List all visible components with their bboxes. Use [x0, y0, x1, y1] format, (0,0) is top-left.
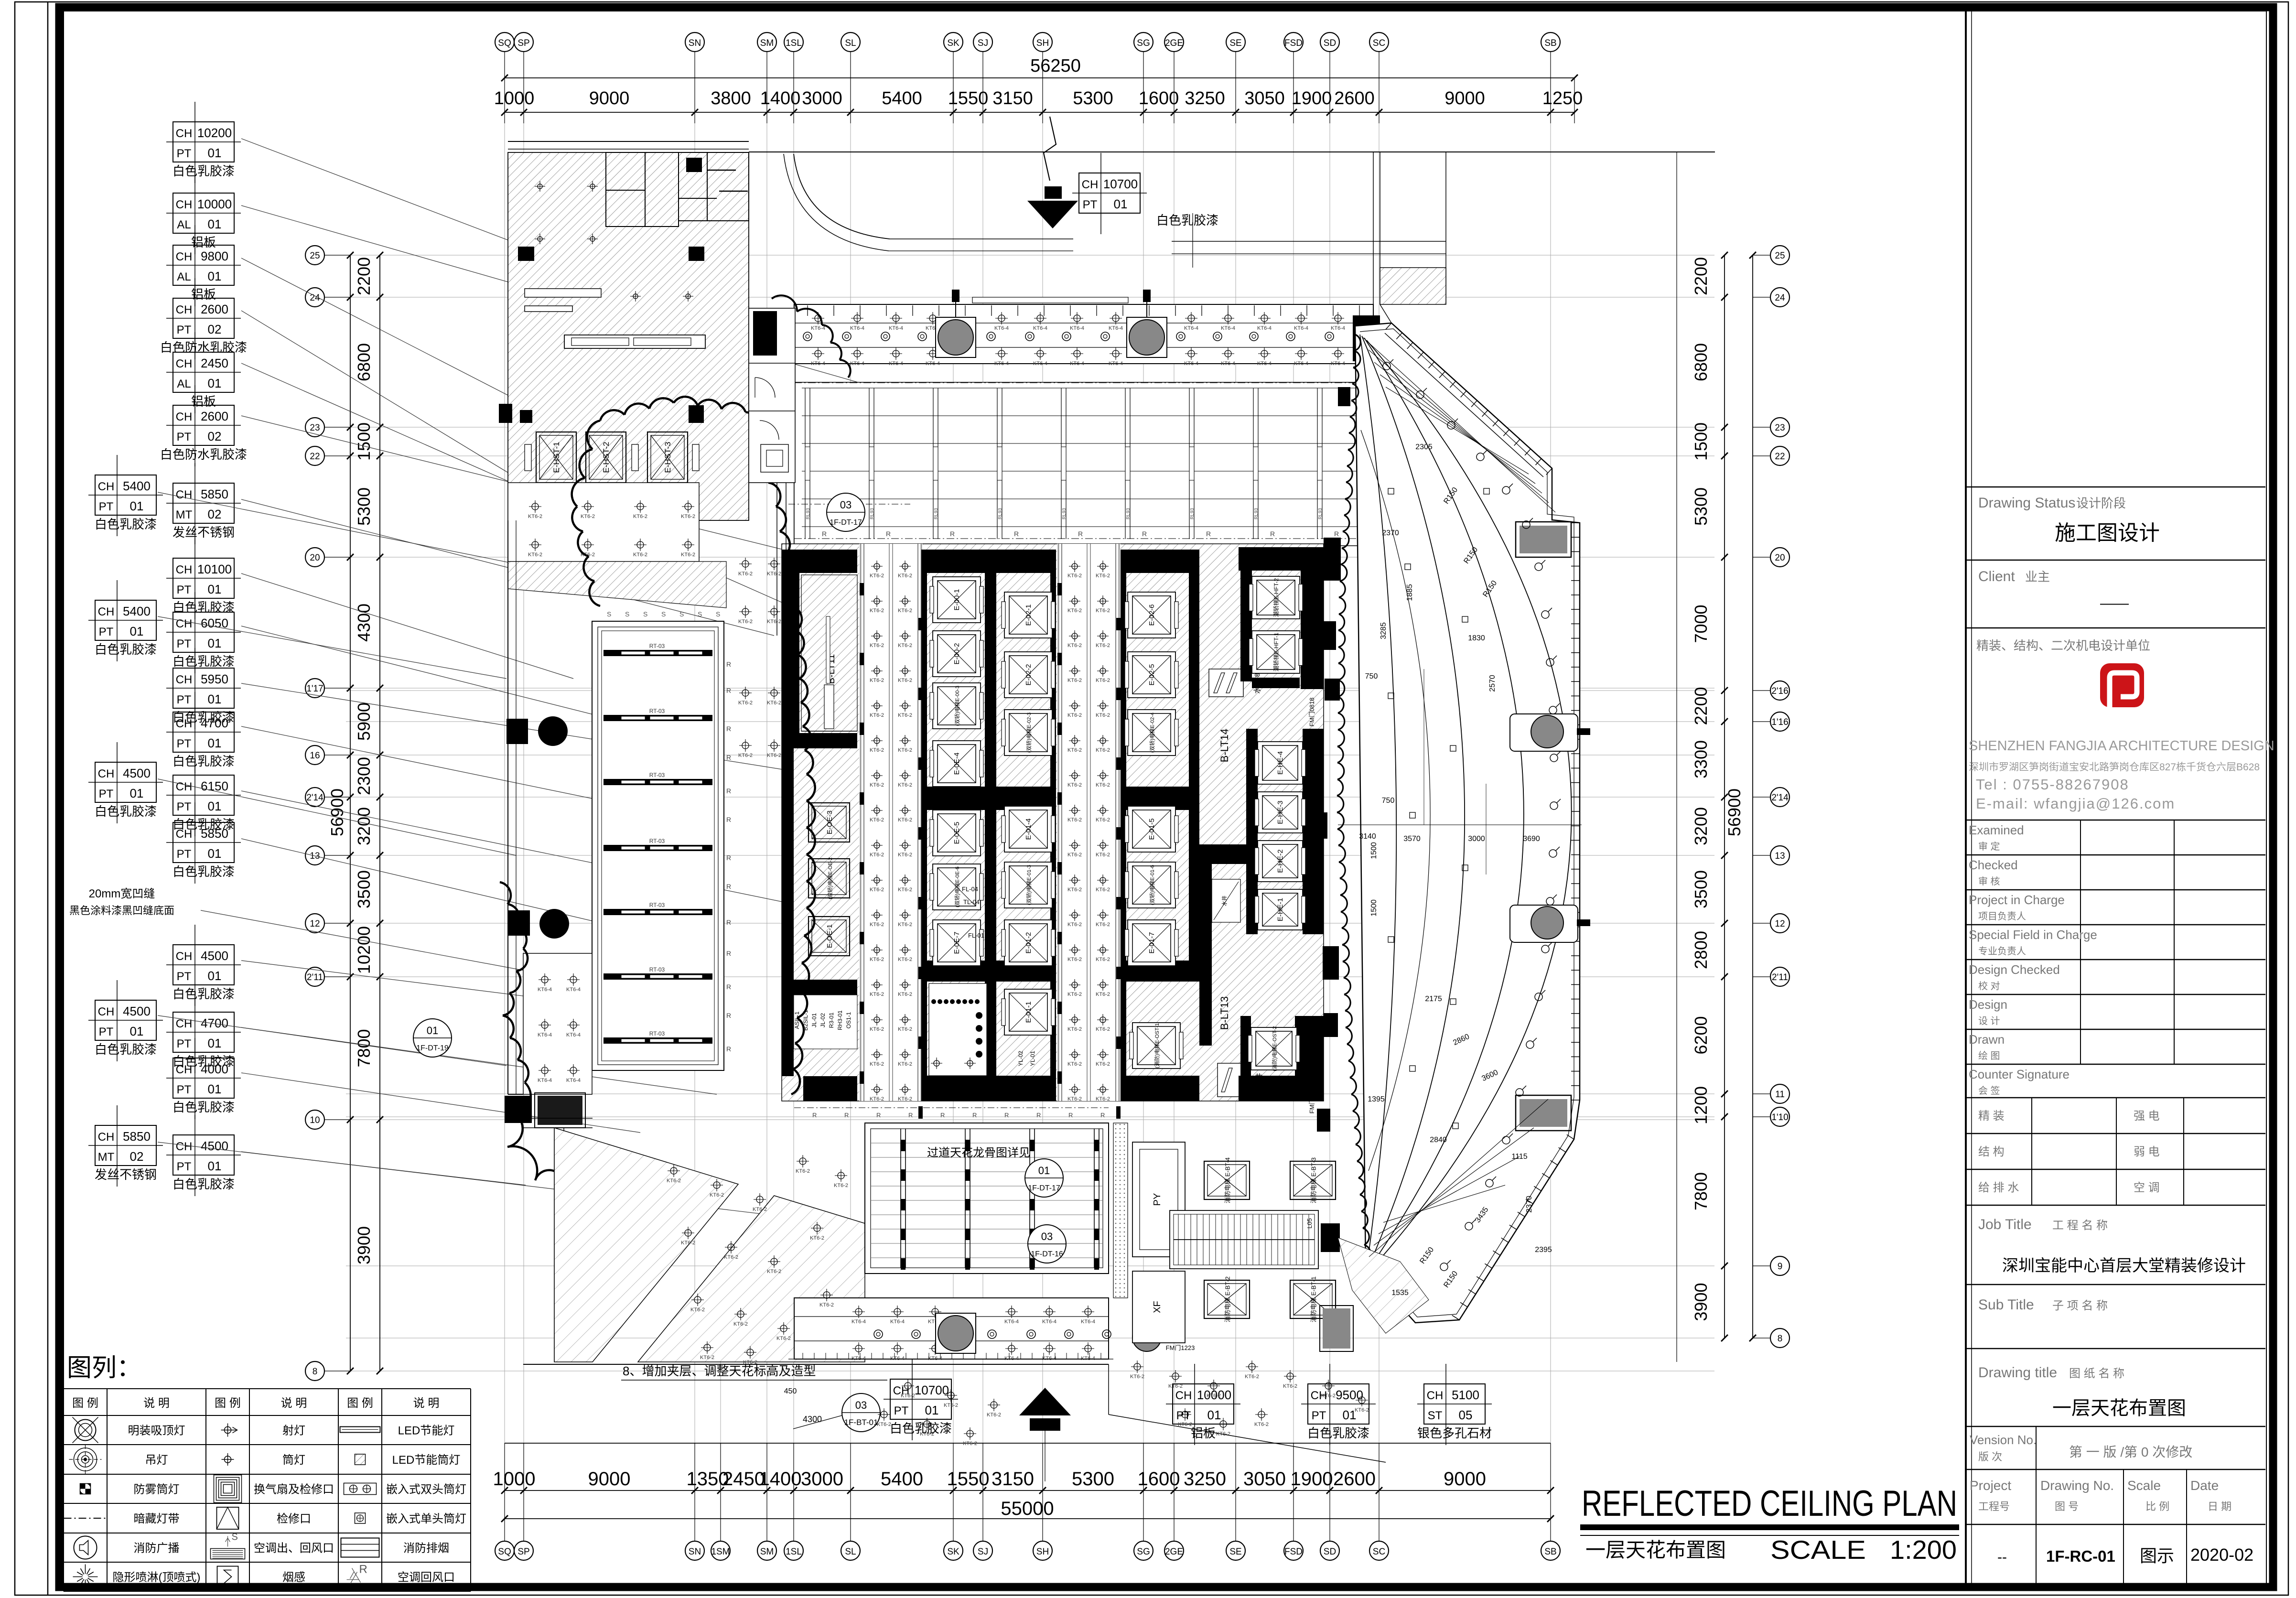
svg-text:RT-03: RT-03 — [649, 1030, 665, 1037]
svg-text:12: 12 — [310, 919, 320, 929]
svg-text:20: 20 — [310, 553, 320, 563]
svg-text:FSD: FSD — [1284, 1547, 1303, 1557]
svg-text:白色乳胶漆: 白色乳胶漆 — [172, 864, 235, 879]
svg-text:SJ: SJ — [978, 1547, 988, 1557]
svg-text:KT6-4: KT6-4 — [566, 987, 581, 993]
svg-text:02: 02 — [208, 507, 222, 521]
svg-text:3000: 3000 — [802, 88, 842, 108]
svg-text:KT6-2: KT6-2 — [1254, 1422, 1269, 1427]
svg-text:Counter Signature: Counter Signature — [1969, 1067, 2070, 1081]
svg-text:工 程 名 称: 工 程 名 称 — [2052, 1219, 2108, 1232]
svg-text:KT6-2: KT6-2 — [1096, 713, 1110, 718]
svg-text:E-02-6: E-02-6 — [1148, 604, 1156, 626]
svg-text:01: 01 — [208, 146, 222, 160]
svg-text:2'11: 2'11 — [307, 972, 323, 983]
svg-text:5300: 5300 — [1073, 88, 1113, 108]
svg-text:AL: AL — [177, 218, 191, 231]
svg-text:KT6-4: KT6-4 — [1004, 1356, 1019, 1361]
svg-text:KT6-4: KT6-4 — [1109, 361, 1123, 367]
svg-text:3140: 3140 — [1359, 832, 1376, 841]
svg-text:05: 05 — [1459, 1408, 1473, 1422]
svg-text:2370: 2370 — [1382, 529, 1399, 537]
svg-text:YL-01: YL-01 — [1029, 1051, 1036, 1066]
svg-text:02: 02 — [208, 429, 222, 443]
svg-text:KT6-2: KT6-2 — [901, 1393, 915, 1399]
svg-text:1SL: 1SL — [786, 1547, 802, 1557]
svg-text:Drawing Status: Drawing Status — [1978, 495, 2075, 511]
svg-text:1200: 1200 — [1691, 1086, 1711, 1124]
svg-text:KT6-2: KT6-2 — [870, 852, 884, 858]
svg-text:CH: CH — [176, 1140, 193, 1153]
svg-text:R: R — [1270, 530, 1275, 538]
svg-text:RL93: RL93 — [998, 508, 1003, 519]
svg-text:FM门1223: FM门1223 — [1166, 1344, 1195, 1351]
svg-text:KT6-2: KT6-2 — [1096, 782, 1110, 788]
svg-text:PT: PT — [99, 500, 114, 513]
svg-text:KT6-2: KT6-2 — [898, 852, 912, 858]
svg-text:KT6-2: KT6-2 — [877, 1422, 891, 1427]
svg-text:4300: 4300 — [803, 1414, 822, 1424]
svg-text:PT: PT — [894, 1404, 909, 1417]
svg-text:2'16: 2'16 — [1771, 686, 1788, 696]
svg-text:4300: 4300 — [354, 604, 374, 642]
svg-text:2175: 2175 — [1425, 995, 1442, 1003]
svg-text:暗藏灯带: 暗藏灯带 — [134, 1512, 180, 1525]
svg-text:03: 03 — [1041, 1231, 1053, 1242]
svg-text:KT6-2: KT6-2 — [1067, 678, 1082, 683]
svg-text:1F-RC-01: 1F-RC-01 — [2046, 1547, 2115, 1565]
svg-text:KT6-2: KT6-2 — [1067, 992, 1082, 997]
svg-text:KT6-4: KT6-4 — [850, 361, 864, 367]
svg-text:(双轿)电梯E-01-6: (双轿)电梯E-01-6 — [1149, 865, 1155, 905]
svg-text:白色乳胶漆: 白色乳胶漆 — [172, 1177, 235, 1191]
svg-text:25: 25 — [1775, 251, 1785, 261]
svg-text:RL93: RL93 — [934, 508, 939, 519]
svg-text:E-HE-2: E-HE-2 — [1276, 849, 1284, 873]
svg-text:01: 01 — [130, 499, 144, 513]
svg-text:KT6-4: KT6-4 — [1033, 325, 1047, 331]
svg-text:KT6-2: KT6-2 — [1096, 747, 1110, 753]
svg-text:R: R — [1068, 1112, 1073, 1119]
svg-text:白色乳胶漆: 白色乳胶漆 — [172, 164, 235, 178]
svg-text:KT6-2: KT6-2 — [581, 514, 595, 519]
svg-text:1SM: 1SM — [711, 1547, 730, 1557]
svg-text:KT6-2: KT6-2 — [1067, 573, 1082, 579]
svg-text:2370: 2370 — [1525, 1196, 1533, 1213]
svg-text:S: S — [679, 610, 684, 618]
svg-text:S: S — [607, 610, 611, 618]
svg-text:精装、结构、二次机电设计单位: 精装、结构、二次机电设计单位 — [1976, 638, 2150, 653]
svg-text:01: 01 — [1038, 1165, 1050, 1177]
svg-text:KT6-2: KT6-2 — [767, 619, 781, 625]
svg-text:R: R — [1334, 530, 1339, 538]
svg-text:KT6-2: KT6-2 — [738, 619, 753, 625]
svg-text:KT6-2: KT6-2 — [767, 753, 781, 758]
svg-text:空 调: 空 调 — [2134, 1181, 2160, 1194]
svg-text:01: 01 — [208, 269, 222, 283]
svg-text:E-HE-4: E-HE-4 — [1276, 751, 1284, 775]
svg-text:KT6-2: KT6-2 — [944, 1403, 958, 1408]
svg-text:(双轿)电梯E-0E-6: (双轿)电梯E-0E-6 — [954, 866, 960, 907]
svg-text:3900: 3900 — [1691, 1283, 1711, 1321]
svg-text:R: R — [1036, 1112, 1041, 1119]
svg-text:4500: 4500 — [201, 1139, 228, 1153]
svg-text:KT6-4: KT6-4 — [811, 325, 825, 331]
svg-text:KT6-2: KT6-2 — [834, 1183, 848, 1188]
svg-text:绘 图: 绘 图 — [1978, 1050, 2000, 1061]
svg-text:5400: 5400 — [882, 88, 922, 108]
svg-text:(消防)电梯E-OST-1: (消防)电梯E-OST-1 — [1153, 1023, 1160, 1068]
svg-text:KT6-2: KT6-2 — [870, 747, 884, 753]
svg-text:PT: PT — [177, 737, 192, 750]
svg-text:SK: SK — [947, 1547, 959, 1557]
svg-text:KT6-2: KT6-2 — [898, 573, 912, 579]
svg-text:KT6-4: KT6-4 — [1081, 1356, 1095, 1361]
svg-text:会 签: 会 签 — [1978, 1085, 2000, 1096]
svg-text:KT6-4: KT6-4 — [994, 361, 1009, 367]
svg-text:KT6-2: KT6-2 — [1067, 747, 1082, 753]
svg-text:PT: PT — [177, 583, 192, 596]
svg-text:7800: 7800 — [1691, 1172, 1711, 1210]
svg-text:S: S — [643, 610, 647, 618]
svg-text:KT6-2: KT6-2 — [681, 514, 695, 519]
svg-text:8: 8 — [1778, 1334, 1783, 1344]
svg-text:白色乳胶漆: 白色乳胶漆 — [95, 517, 157, 531]
svg-text:KT6-2: KT6-2 — [681, 1240, 695, 1246]
svg-text:CH: CH — [176, 250, 193, 263]
svg-text:KT6-2: KT6-2 — [1096, 1026, 1110, 1032]
svg-text:10700: 10700 — [915, 1383, 949, 1397]
svg-text:弱 电: 弱 电 — [2134, 1145, 2160, 1158]
svg-text:SC: SC — [1373, 38, 1385, 48]
svg-text:KT6-2: KT6-2 — [710, 1192, 724, 1198]
svg-text:R: R — [940, 1112, 945, 1119]
svg-text:KT6-2: KT6-2 — [1067, 643, 1082, 648]
svg-text:5300: 5300 — [1691, 487, 1711, 526]
svg-text:潮轿梯E-HFT-1: 潮轿梯E-HFT-1 — [1272, 633, 1280, 672]
svg-text:Design Checked: Design Checked — [1969, 962, 2060, 977]
svg-text:3000: 3000 — [801, 1468, 843, 1490]
svg-text:01: 01 — [130, 786, 144, 800]
svg-text:1:200: 1:200 — [1890, 1535, 1957, 1565]
svg-text:KT6-4: KT6-4 — [566, 1032, 581, 1038]
svg-text:R: R — [726, 883, 731, 890]
svg-text:2'14: 2'14 — [306, 793, 323, 803]
svg-text:KT6-2: KT6-2 — [753, 1207, 767, 1212]
svg-text:隐形喷淋(顶喷式): 隐形喷淋(顶喷式) — [113, 1571, 201, 1584]
svg-text:白色乳胶漆: 白色乳胶漆 — [1156, 213, 1218, 227]
svg-text:1500: 1500 — [1691, 422, 1711, 461]
svg-text:一层天花布置图: 一层天花布置图 — [1585, 1539, 1726, 1561]
svg-text:SCALE: SCALE — [1770, 1535, 1866, 1565]
svg-text:3500: 3500 — [1691, 870, 1711, 908]
svg-text:换气扇及检修口: 换气扇及检修口 — [254, 1483, 334, 1496]
svg-text:水井: 水井 — [1221, 896, 1228, 906]
svg-text:FM门0818: FM门0818 — [1308, 698, 1315, 727]
svg-text:PY: PY — [1152, 1193, 1163, 1206]
svg-text:CH: CH — [176, 673, 193, 686]
svg-text:01: 01 — [208, 1036, 222, 1050]
svg-text:R: R — [1100, 1112, 1105, 1119]
svg-text:CH: CH — [98, 767, 115, 780]
svg-text:KT6-4: KT6-4 — [1184, 325, 1198, 331]
svg-text:图 纸 名 称: 图 纸 名 称 — [2069, 1367, 2124, 1380]
svg-text:CH: CH — [176, 127, 193, 140]
svg-text:2570: 2570 — [1488, 675, 1497, 692]
svg-text:CH: CH — [176, 357, 193, 370]
svg-text:KT6-2: KT6-2 — [870, 1061, 884, 1067]
svg-text:PT: PT — [177, 1037, 192, 1050]
svg-text:KT6-4: KT6-4 — [852, 1356, 866, 1361]
svg-text:02: 02 — [130, 1149, 144, 1164]
svg-text:SL: SL — [845, 38, 856, 48]
svg-text:KT6-2: KT6-2 — [690, 1307, 705, 1313]
svg-text:R3-01: R3-01 — [828, 1012, 835, 1028]
svg-text:23: 23 — [1775, 423, 1785, 433]
svg-text:01: 01 — [208, 692, 222, 706]
svg-text:图 例: 图 例 — [347, 1397, 373, 1410]
svg-text:E-OE-3: E-OE-3 — [826, 810, 834, 834]
svg-text:1600: 1600 — [1138, 1468, 1180, 1490]
svg-text:AL: AL — [177, 270, 191, 283]
svg-text:PT: PT — [177, 693, 192, 706]
svg-text:CH: CH — [176, 828, 193, 841]
svg-text:1500: 1500 — [354, 422, 374, 461]
svg-text:SH: SH — [1036, 1547, 1049, 1557]
svg-text:专业负责人: 专业负责人 — [1978, 946, 2026, 957]
svg-text:KT6-4: KT6-4 — [538, 987, 552, 993]
svg-text:PT: PT — [99, 626, 114, 638]
svg-text:Date: Date — [2190, 1478, 2219, 1493]
svg-text:750: 750 — [1382, 797, 1395, 805]
svg-text:Design: Design — [1969, 997, 2007, 1012]
svg-text:KT6-2: KT6-2 — [870, 1026, 884, 1032]
svg-text:2020-02: 2020-02 — [2190, 1545, 2253, 1565]
svg-text:E-00-1: E-00-1 — [953, 589, 961, 610]
svg-text:KT6-4: KT6-4 — [1257, 361, 1272, 367]
svg-text:1250: 1250 — [1542, 88, 1583, 108]
svg-text:过道天花龙骨图详见: 过道天花龙骨图详见 — [927, 1146, 1030, 1159]
svg-text:KT6-2: KT6-2 — [776, 1336, 791, 1341]
svg-text:R: R — [726, 816, 731, 823]
svg-text:E-OE-1: E-OE-1 — [826, 924, 834, 948]
svg-text:消防电梯 E-BT-3: 消防电梯 E-BT-3 — [1310, 1157, 1317, 1203]
svg-text:KT6-2: KT6-2 — [1096, 643, 1110, 648]
svg-text:9000: 9000 — [589, 88, 630, 108]
svg-text:R: R — [876, 1112, 881, 1119]
svg-text:白色乳胶漆: 白色乳胶漆 — [95, 1042, 157, 1057]
svg-text:KT6-2: KT6-2 — [1067, 1061, 1082, 1067]
svg-text:R: R — [726, 1012, 731, 1019]
svg-text:S: S — [625, 610, 629, 618]
svg-text:说 明: 说 明 — [143, 1397, 170, 1410]
svg-text:20: 20 — [1775, 553, 1785, 563]
svg-text:01: 01 — [208, 217, 222, 231]
svg-text:R: R — [726, 754, 731, 761]
svg-text:RL93: RL93 — [870, 508, 875, 519]
svg-text:SM: SM — [760, 1547, 774, 1557]
svg-text:KT6-4: KT6-4 — [1257, 325, 1272, 331]
svg-text:KT6-2: KT6-2 — [1096, 957, 1110, 962]
svg-text:10100: 10100 — [197, 562, 232, 576]
svg-text:6800: 6800 — [1691, 343, 1711, 381]
svg-text:01: 01 — [208, 846, 222, 861]
svg-text:KT6-2: KT6-2 — [920, 1431, 934, 1437]
svg-text:1885: 1885 — [1406, 584, 1414, 601]
svg-text:KT6-2: KT6-2 — [1067, 852, 1082, 858]
svg-text:Drawn: Drawn — [1969, 1032, 2005, 1047]
svg-text:SB: SB — [1544, 38, 1556, 48]
svg-text:03: 03 — [840, 499, 852, 511]
svg-text:图 例: 图 例 — [215, 1397, 241, 1410]
svg-text:1830: 1830 — [1468, 634, 1485, 642]
svg-text:项目负责人: 项目负责人 — [1978, 911, 2026, 922]
svg-text:(双轿)电梯E-02-3: (双轿)电梯E-02-3 — [1025, 713, 1032, 753]
svg-text:PT: PT — [99, 1026, 114, 1038]
svg-text:3150: 3150 — [992, 88, 1033, 108]
svg-text:CH: CH — [176, 488, 193, 501]
svg-text:B-LT14: B-LT14 — [1218, 729, 1230, 763]
svg-text:JL-01: JL-01 — [811, 1013, 818, 1027]
svg-text:精 装: 精 装 — [1978, 1110, 2005, 1123]
svg-text:2200: 2200 — [1691, 257, 1711, 295]
svg-text:KT6-2: KT6-2 — [633, 514, 647, 519]
svg-text:KT6-2: KT6-2 — [796, 1168, 810, 1174]
svg-text:KT6-2: KT6-2 — [898, 782, 912, 788]
svg-text:REFLECTED CEILING PLAN: REFLECTED CEILING PLAN — [1582, 1483, 1957, 1524]
svg-text:嵌入式单头筒灯: 嵌入式单头筒灯 — [386, 1512, 466, 1525]
svg-text:KT6-2: KT6-2 — [898, 713, 912, 718]
svg-text:KT6-2: KT6-2 — [528, 514, 542, 519]
svg-text:1550: 1550 — [947, 1468, 990, 1490]
svg-text:KT6-4: KT6-4 — [538, 1078, 552, 1083]
svg-text:KT6-2: KT6-2 — [1096, 608, 1110, 614]
svg-text:25: 25 — [310, 251, 320, 261]
svg-text:R: R — [950, 530, 955, 538]
svg-text:图 例: 图 例 — [72, 1397, 98, 1410]
svg-text:消防电梯 E-BT-2: 消防电梯 E-BT-2 — [1224, 1276, 1231, 1322]
svg-text:SQ: SQ — [498, 1547, 511, 1557]
svg-text:KT6-2: KT6-2 — [1096, 1061, 1110, 1067]
svg-text:5850: 5850 — [123, 1129, 151, 1144]
svg-text:KT6-2: KT6-2 — [633, 552, 647, 558]
svg-text:5400: 5400 — [123, 479, 151, 493]
svg-text:KT6-2: KT6-2 — [1096, 852, 1110, 858]
svg-text:3285: 3285 — [1380, 622, 1388, 639]
svg-text:空调出、回风口: 空调出、回风口 — [254, 1542, 334, 1555]
svg-text:R: R — [822, 530, 827, 538]
svg-text:KT6-4: KT6-4 — [1070, 361, 1084, 367]
svg-text:5400: 5400 — [881, 1468, 923, 1490]
svg-text:YL-02: YL-02 — [1017, 1051, 1024, 1066]
svg-text:SHENZHEN FANGJIA ARCHITECTURE: SHENZHEN FANGJIA ARCHITECTURE DESIGN — [1969, 738, 2274, 754]
svg-text:KT6-2: KT6-2 — [1096, 887, 1110, 893]
svg-text:R: R — [726, 1045, 731, 1053]
svg-text:KT6-2: KT6-2 — [767, 700, 781, 706]
svg-text:1F-DT-17: 1F-DT-17 — [830, 518, 862, 527]
svg-text:1535: 1535 — [1391, 1289, 1409, 1297]
svg-text:KT6-2: KT6-2 — [819, 1302, 834, 1308]
svg-text:11: 11 — [1775, 1090, 1785, 1100]
svg-text:KT6-4: KT6-4 — [890, 1356, 905, 1361]
svg-text:3500: 3500 — [354, 870, 374, 908]
svg-text:R: R — [726, 787, 731, 795]
svg-text:KT6-2: KT6-2 — [870, 608, 884, 614]
svg-text:银色多孔石材: 银色多孔石材 — [1417, 1426, 1492, 1440]
svg-text:防雾筒灯: 防雾筒灯 — [134, 1483, 180, 1496]
svg-text:LED节能灯: LED节能灯 — [398, 1425, 455, 1437]
svg-text:发丝不锈钢: 发丝不锈钢 — [172, 525, 235, 540]
svg-text:1400: 1400 — [759, 1468, 802, 1490]
svg-text:03: 03 — [855, 1399, 867, 1411]
svg-text:LED节能筒灯: LED节能筒灯 — [392, 1454, 461, 1467]
svg-text:3250: 3250 — [1184, 1468, 1226, 1490]
svg-text:白色乳胶漆: 白色乳胶漆 — [172, 754, 235, 768]
svg-text:白色乳胶漆: 白色乳胶漆 — [172, 1100, 235, 1114]
svg-text:KT6-2: KT6-2 — [870, 957, 884, 962]
svg-text:KT6-2: KT6-2 — [898, 678, 912, 683]
svg-text:KT6-2: KT6-2 — [667, 1178, 681, 1184]
svg-text:RT-03: RT-03 — [649, 966, 665, 973]
svg-text:RT-03: RT-03 — [649, 772, 665, 778]
svg-text:KT6-4: KT6-4 — [1042, 1356, 1056, 1361]
svg-text:子 项 名 称: 子 项 名 称 — [2052, 1299, 2108, 1312]
svg-text:射灯: 射灯 — [282, 1425, 305, 1437]
svg-text:R: R — [726, 660, 731, 668]
svg-text:KT6-4: KT6-4 — [1184, 361, 1198, 367]
svg-text:铝板: 铝板 — [1191, 1426, 1216, 1440]
svg-text:1550: 1550 — [948, 88, 989, 108]
svg-text:2800: 2800 — [1691, 931, 1711, 969]
svg-text:给 排 水: 给 排 水 — [1978, 1181, 2019, 1194]
svg-text:1900: 1900 — [1292, 88, 1332, 108]
svg-text:1000: 1000 — [494, 88, 535, 108]
svg-text:KT6-2: KT6-2 — [1321, 1393, 1336, 1399]
svg-text:R: R — [726, 983, 731, 991]
svg-text:烟感: 烟感 — [282, 1571, 305, 1584]
svg-text:22: 22 — [310, 452, 320, 462]
svg-text:16: 16 — [310, 751, 320, 761]
svg-text:KT6-2: KT6-2 — [810, 1235, 824, 1241]
svg-text:KT6-2: KT6-2 — [1067, 608, 1082, 614]
svg-text:2600: 2600 — [1333, 1468, 1376, 1490]
svg-text:SN: SN — [689, 1547, 701, 1557]
svg-text:KT6-2: KT6-2 — [898, 1061, 912, 1067]
svg-text:E-01-7: E-01-7 — [1148, 932, 1156, 953]
svg-text:PT: PT — [177, 431, 192, 443]
svg-text:KT6-2: KT6-2 — [898, 887, 912, 893]
svg-text:R: R — [726, 854, 731, 862]
svg-text:E-02-5: E-02-5 — [1148, 664, 1156, 685]
svg-text:3570: 3570 — [1403, 835, 1421, 843]
svg-text:R: R — [1206, 530, 1211, 538]
svg-text:CH: CH — [176, 563, 193, 576]
svg-text:KT6-4: KT6-4 — [1070, 325, 1084, 331]
svg-text:Special Field in Charge: Special Field in Charge — [1969, 928, 2097, 942]
svg-text:深圳市罗湖区笋岗街道宝安北路笋岗仓库区827栋千货仓六层B6: 深圳市罗湖区笋岗街道宝安北路笋岗仓库区827栋千货仓六层B628 — [1969, 762, 2260, 773]
svg-text:R: R — [972, 1112, 977, 1119]
svg-text:E-00-2: E-00-2 — [953, 643, 961, 664]
svg-text:1'10: 1'10 — [1771, 1112, 1788, 1123]
svg-text:PT: PT — [177, 848, 192, 861]
svg-text:KT6-2: KT6-2 — [870, 713, 884, 718]
svg-text:结 构: 结 构 — [1978, 1145, 2005, 1158]
svg-text:KT6-2: KT6-2 — [898, 1026, 912, 1032]
svg-text:4700: 4700 — [201, 716, 228, 730]
svg-text:3250: 3250 — [1185, 88, 1225, 108]
svg-text:消防电梯 E-BT-4: 消防电梯 E-BT-4 — [1224, 1157, 1231, 1203]
svg-text:56900: 56900 — [1725, 788, 1744, 836]
